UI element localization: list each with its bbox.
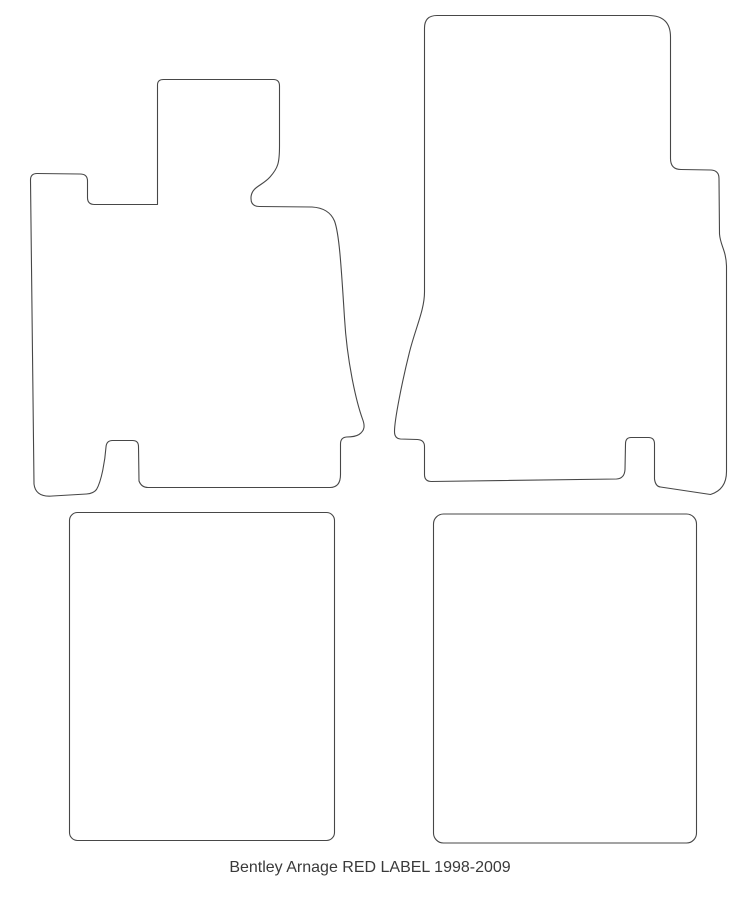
rear-right-mat-outline — [434, 514, 697, 843]
front-right-mat-outline — [395, 16, 727, 495]
caption-text: Bentley Arnage RED LABEL 1998-2009 — [0, 858, 740, 877]
mat-template-drawing — [0, 0, 751, 900]
mat-template-page: Bentley Arnage RED LABEL 1998-2009 — [0, 0, 751, 900]
front-left-mat-outline — [31, 80, 365, 497]
rear-left-mat-outline — [70, 513, 335, 841]
